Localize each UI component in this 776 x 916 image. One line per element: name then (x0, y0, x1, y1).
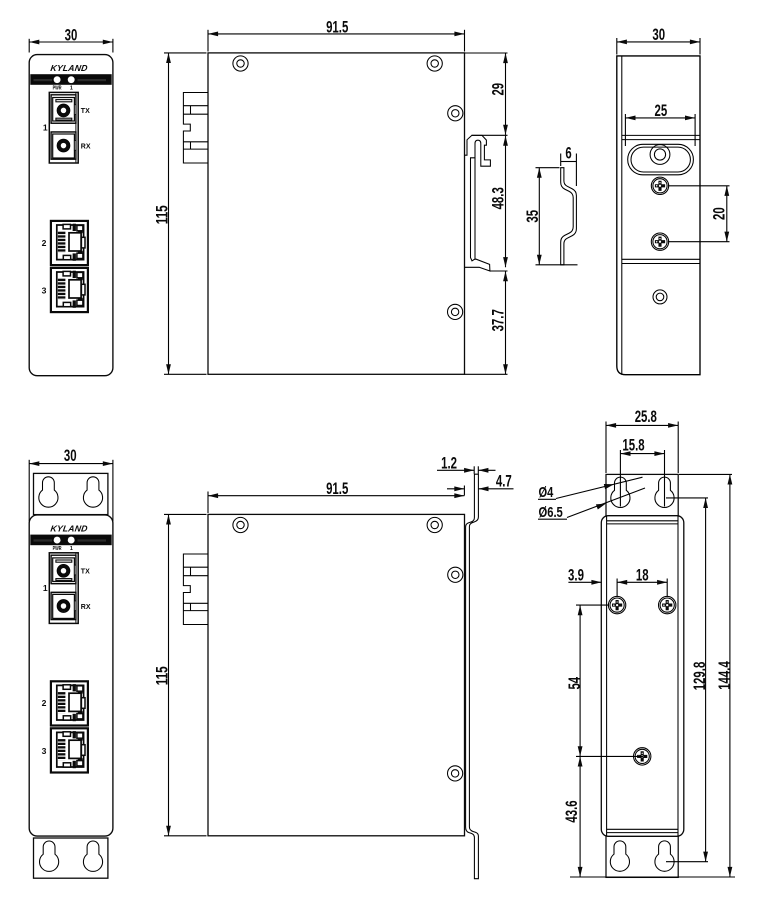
svg-text:4.7: 4.7 (496, 471, 512, 490)
svg-text:25: 25 (655, 101, 668, 120)
svg-text:48.3: 48.3 (489, 187, 508, 209)
svg-text:6: 6 (565, 144, 571, 163)
svg-text:37.7: 37.7 (489, 309, 508, 331)
svg-text:29: 29 (489, 83, 508, 96)
svg-text:43.6: 43.6 (562, 800, 581, 822)
svg-text:30: 30 (652, 25, 665, 44)
svg-text:Ø4: Ø4 (539, 485, 554, 501)
svg-text:91.5: 91.5 (326, 479, 348, 498)
svg-text:144.4: 144.4 (715, 661, 734, 690)
svg-text:54: 54 (565, 676, 584, 689)
svg-text:30: 30 (64, 446, 77, 465)
svg-text:25.8: 25.8 (635, 407, 657, 426)
svg-text:1.2: 1.2 (441, 454, 457, 473)
svg-text:20: 20 (709, 207, 728, 220)
svg-text:15.8: 15.8 (622, 436, 644, 455)
